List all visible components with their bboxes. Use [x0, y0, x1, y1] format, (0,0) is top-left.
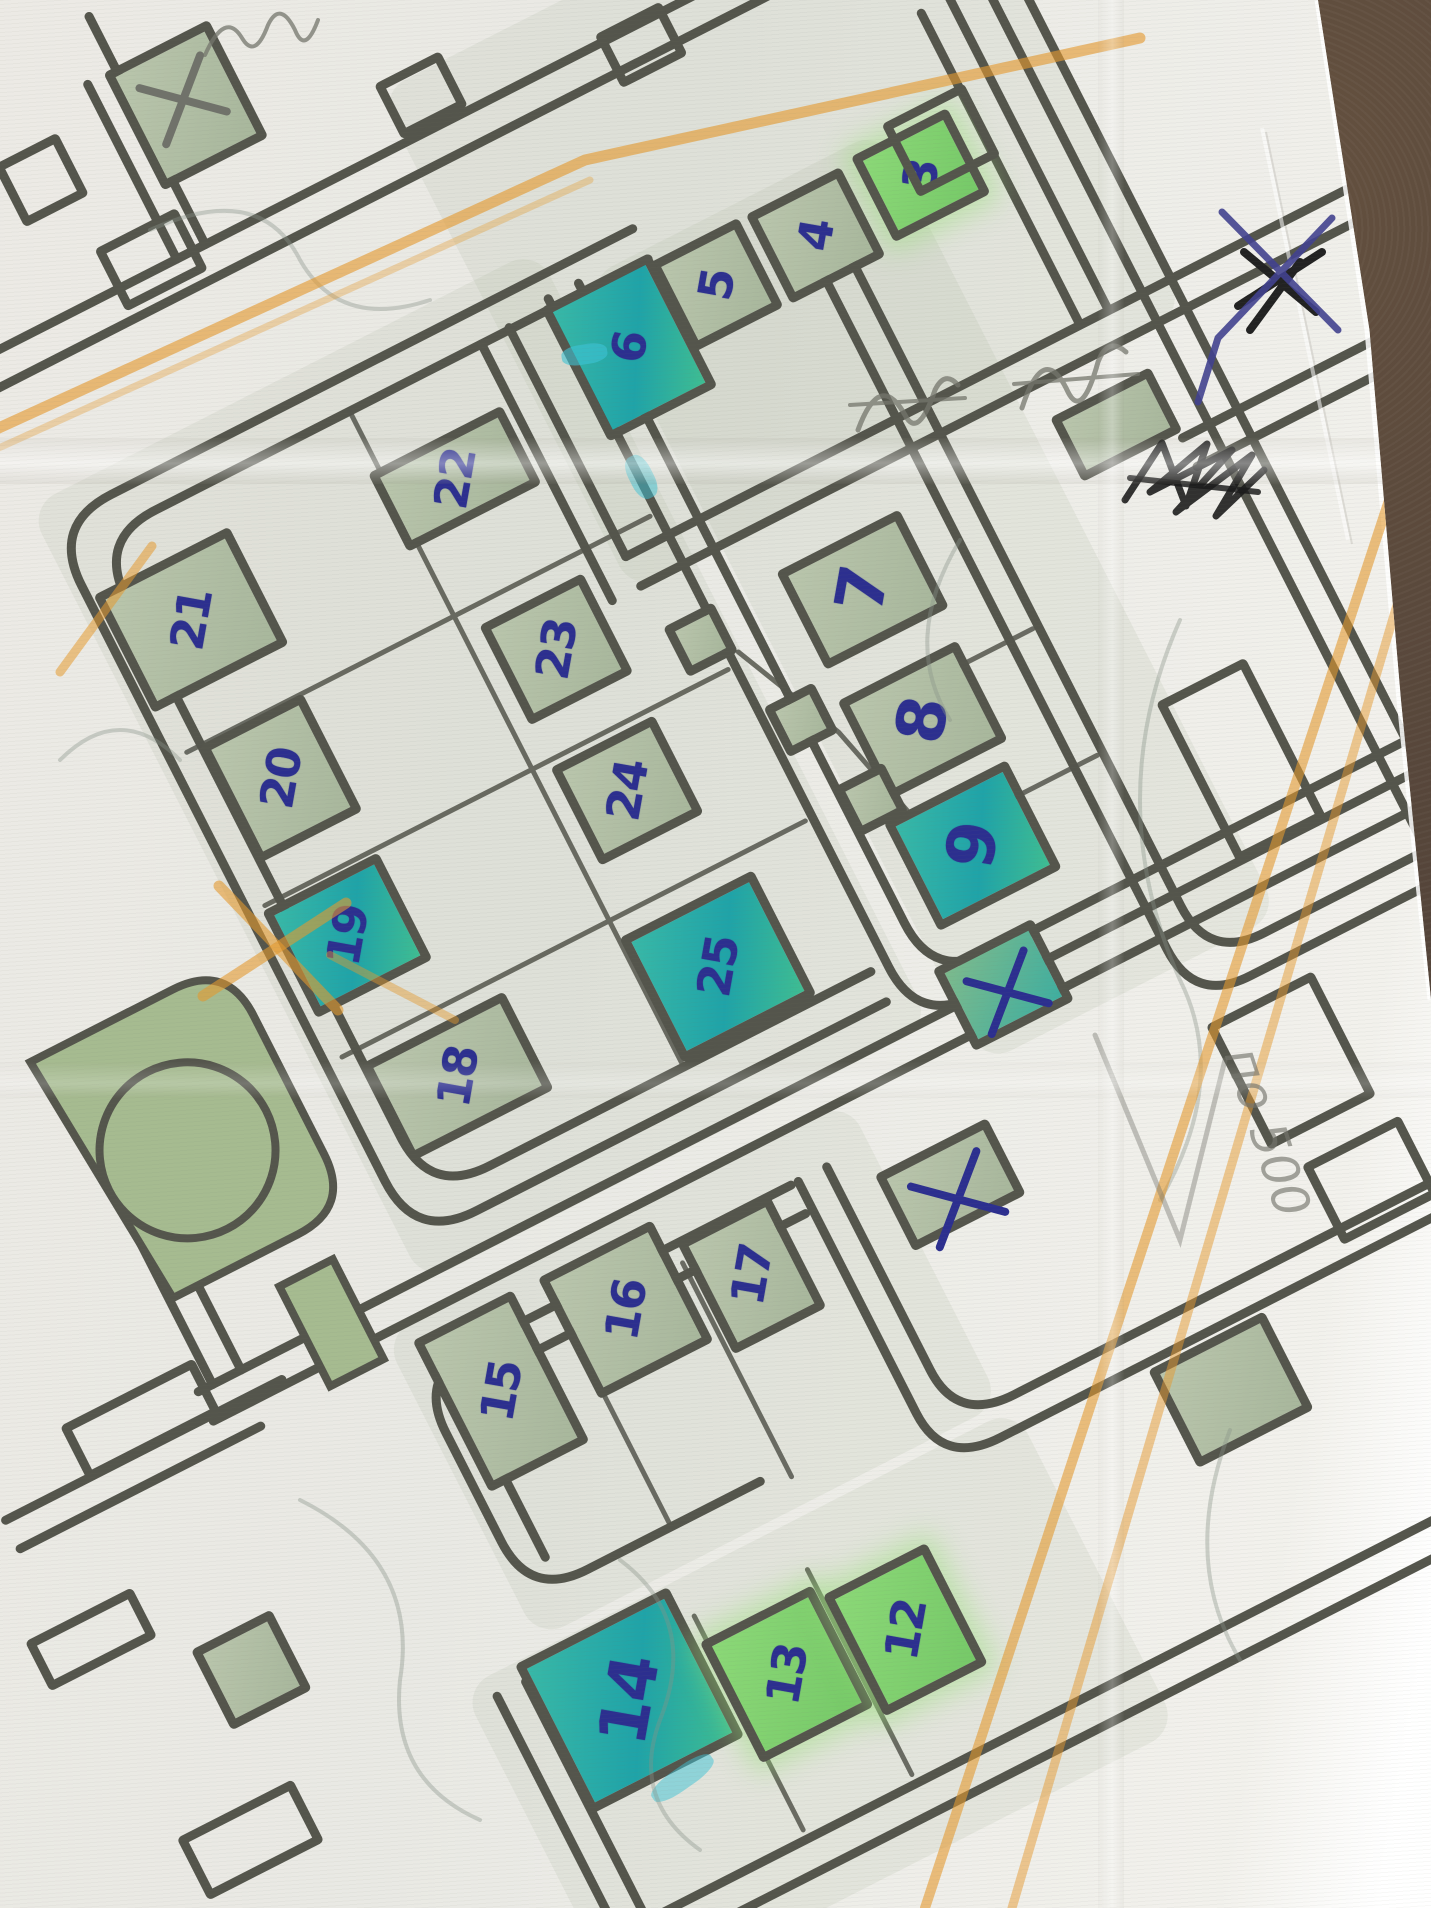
- annotation-overlay: [0, 0, 1431, 1908]
- pencil-scribbles: [205, 14, 1225, 1240]
- paper-sheet: 34567892122232024192518171615141312: [0, 0, 1431, 1908]
- black-scratch-out: [1125, 443, 1264, 516]
- photo-of-annotated-map: 34567892122232024192518171615141312: [0, 0, 1431, 1908]
- orange-highlighter: [0, 38, 1428, 1908]
